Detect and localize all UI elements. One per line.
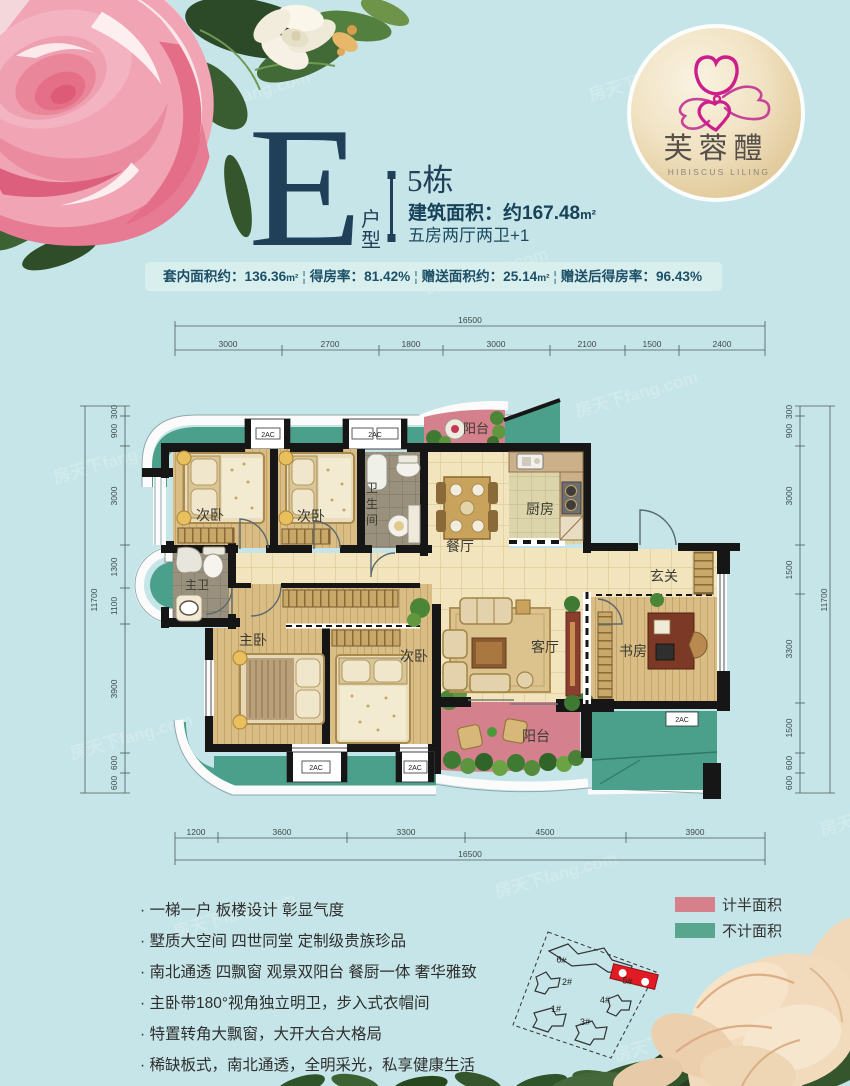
svg-text:300: 300 (109, 405, 119, 419)
svg-text:3#: 3# (580, 1017, 590, 1027)
svg-text:餐厅: 餐厅 (446, 538, 474, 554)
svg-text:E: E (248, 92, 363, 282)
svg-text:间: 间 (366, 513, 378, 527)
svg-text:1#: 1# (551, 1004, 561, 1014)
svg-text:600: 600 (784, 756, 794, 770)
svg-text:2AC: 2AC (408, 765, 422, 772)
svg-text:900: 900 (109, 424, 119, 438)
svg-text:11700: 11700 (89, 588, 99, 611)
svg-text:300: 300 (784, 405, 794, 419)
svg-text:1100: 1100 (109, 597, 119, 616)
svg-text:16500: 16500 (458, 849, 482, 859)
svg-text:2#: 2# (562, 977, 572, 987)
svg-text:户: 户 (361, 208, 381, 231)
svg-text:不计面积: 不计面积 (722, 923, 782, 940)
svg-text:2AC: 2AC (261, 432, 275, 439)
svg-text:3000: 3000 (219, 339, 238, 349)
svg-text:五房两厅两卫+1: 五房两厅两卫+1 (408, 226, 529, 245)
svg-text:客厅: 客厅 (531, 639, 559, 655)
svg-text:玄关: 玄关 (650, 568, 678, 584)
svg-text:3900: 3900 (686, 827, 705, 837)
svg-text:1500: 1500 (784, 560, 794, 579)
svg-text:2100: 2100 (578, 339, 597, 349)
svg-text:11700: 11700 (819, 588, 829, 611)
svg-text:型: 型 (361, 229, 381, 252)
svg-text:3300: 3300 (397, 827, 416, 837)
svg-text:书房: 书房 (619, 643, 647, 659)
svg-text:次卧: 次卧 (297, 508, 325, 524)
svg-text:主卫: 主卫 (185, 578, 209, 592)
svg-text:3600: 3600 (273, 827, 292, 837)
svg-text:3000: 3000 (487, 339, 506, 349)
svg-text:2AC: 2AC (309, 765, 323, 772)
svg-text:4#: 4# (600, 995, 610, 1005)
svg-text:套内面积约：136.36m² ¦ 得房率：81.42%: 套内面积约：136.36m² ¦ 得房率：81.42% ¦ 赠送面积约：25.1… (163, 268, 702, 284)
svg-text:3000: 3000 (109, 486, 119, 505)
svg-text:阳台: 阳台 (463, 421, 489, 436)
svg-text:2700: 2700 (321, 339, 340, 349)
svg-text:600: 600 (784, 776, 794, 790)
svg-text:600: 600 (109, 776, 119, 790)
svg-text:4500: 4500 (536, 827, 555, 837)
svg-text:1200: 1200 (187, 827, 206, 837)
svg-text:次卧: 次卧 (400, 648, 428, 664)
svg-text:阳台: 阳台 (522, 728, 550, 744)
svg-text:· 特置转角大飘窗，大开大合大格局: · 特置转角大飘窗，大开大合大格局 (140, 1025, 382, 1043)
svg-text:2AC: 2AC (675, 717, 689, 724)
svg-text:1800: 1800 (402, 339, 421, 349)
svg-text:2400: 2400 (713, 339, 732, 349)
svg-text:6#: 6# (556, 954, 568, 966)
svg-text:5#: 5# (622, 975, 634, 987)
svg-text:3900: 3900 (109, 679, 119, 698)
svg-text:HIBISCUS LILING: HIBISCUS LILING (668, 167, 770, 177)
svg-text:生: 生 (366, 497, 378, 511)
svg-text:900: 900 (784, 424, 794, 438)
svg-text:厨房: 厨房 (526, 501, 554, 517)
svg-text:· 墅质大空间 四世同堂 定制级贵族珍品: · 墅质大空间 四世同堂 定制级贵族珍品 (140, 932, 406, 950)
svg-text:5栋: 5栋 (407, 163, 454, 198)
svg-text:卫: 卫 (366, 481, 378, 495)
svg-text:· 主卧带180°视角独立明卫，步入式衣帽间: · 主卧带180°视角独立明卫，步入式衣帽间 (140, 994, 430, 1012)
svg-text:3000: 3000 (784, 486, 794, 505)
svg-text:· 一梯一户 板楼设计 彰显气度: · 一梯一户 板楼设计 彰显气度 (140, 900, 344, 919)
svg-text:· 南北通透 四飘窗 观景双阳台 餐厨一体 奢华雅致: · 南北通透 四飘窗 观景双阳台 餐厨一体 奢华雅致 (140, 963, 477, 981)
svg-text:· 稀缺板式，南北通透，全明采光，私享健康生活: · 稀缺板式，南北通透，全明采光，私享健康生活 (140, 1056, 475, 1074)
svg-text:1500: 1500 (643, 339, 662, 349)
svg-text:建筑面积：约167.48m²: 建筑面积：约167.48m² (408, 201, 597, 224)
svg-text:600: 600 (109, 756, 119, 770)
svg-text:次卧: 次卧 (196, 507, 224, 523)
svg-text:16500: 16500 (458, 315, 482, 325)
svg-text:1500: 1500 (784, 718, 794, 737)
svg-text:1300: 1300 (109, 557, 119, 576)
svg-text:主卧: 主卧 (239, 632, 267, 648)
svg-text:3300: 3300 (784, 639, 794, 658)
svg-text:芙蓉醴: 芙蓉醴 (663, 132, 768, 165)
svg-text:2AC: 2AC (368, 432, 382, 439)
svg-text:计半面积: 计半面积 (722, 897, 782, 914)
